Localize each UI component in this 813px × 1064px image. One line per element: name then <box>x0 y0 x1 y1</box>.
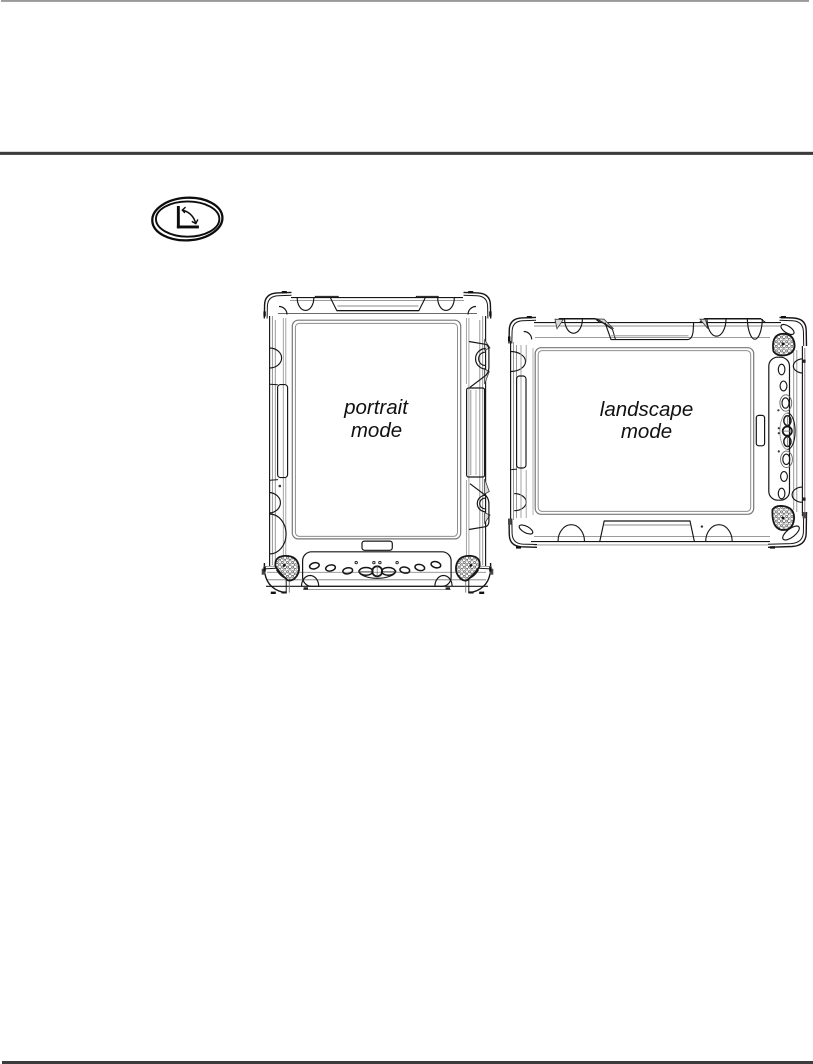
svg-text:mode: mode <box>351 419 402 442</box>
svg-text:landscape: landscape <box>600 398 693 421</box>
svg-text:mode: mode <box>621 420 672 443</box>
svg-text:portrait: portrait <box>343 396 409 419</box>
